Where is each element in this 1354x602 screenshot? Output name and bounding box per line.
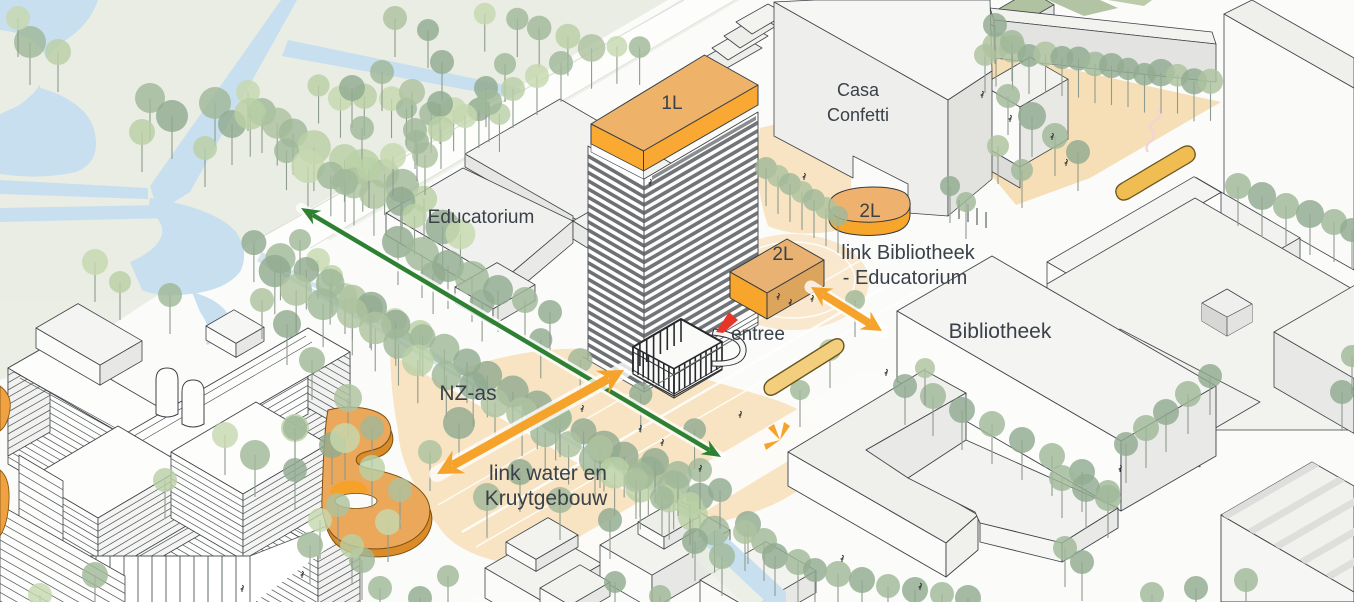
svg-text:entree: entree [731,324,785,345]
svg-text:link Bibliotheek: link Bibliotheek [841,242,975,264]
svg-text:Casa: Casa [837,80,880,100]
svg-text:Kruytgebouw: Kruytgebouw [485,487,608,510]
svg-text:1L: 1L [661,93,682,114]
svg-text:- Educatorium: - Educatorium [843,267,968,289]
svg-text:link water en: link water en [489,462,607,485]
svg-text:Educatorium: Educatorium [428,207,535,228]
svg-text:Bibliotheek: Bibliotheek [949,320,1052,343]
svg-text:2L: 2L [772,244,793,265]
svg-text:2L: 2L [859,201,880,222]
svg-text:NZ-as: NZ-as [439,382,496,405]
svg-text:Confetti: Confetti [827,105,889,125]
